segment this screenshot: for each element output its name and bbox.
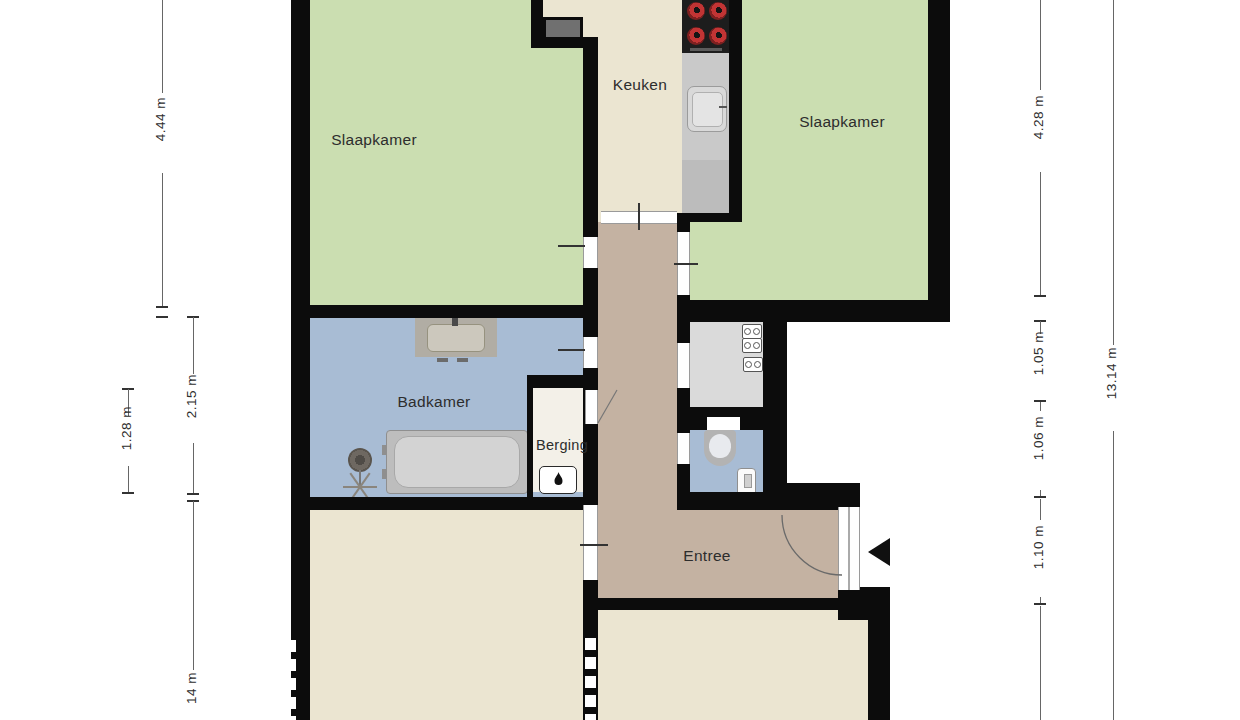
dim-line: [162, 0, 163, 93]
dim-label-1-10: 1.10 m: [1031, 525, 1050, 569]
dim-tick: [1034, 496, 1046, 498]
label-bedroom-left: Slaapkamer: [331, 131, 417, 149]
plan-overlay: [0, 0, 1240, 720]
label-kitchen: Keuken: [613, 76, 667, 94]
dim-line: [193, 443, 194, 494]
dim-tick: [1034, 603, 1046, 605]
dim-line: [1040, 499, 1041, 520]
dim-tick: [156, 306, 168, 308]
floor-plan-canvas: Slaapkamer Keuken Slaapkamer Badkamer Be…: [0, 0, 1240, 720]
dim-line: [1040, 172, 1041, 296]
dim-line: [1040, 402, 1041, 411]
dim-line: [193, 317, 194, 374]
dim-label-1-28: 1.28 m: [119, 406, 138, 450]
label-bedroom-right: Slaapkamer: [799, 113, 885, 131]
dim-tick: [156, 316, 168, 318]
dim-line: [1113, 431, 1114, 720]
dim-line: [162, 173, 163, 307]
dim-label-2-15: 2.15 m: [184, 374, 203, 418]
dim-line: [1040, 606, 1041, 720]
label-bathroom: Badkamer: [397, 393, 470, 411]
dim-line: [128, 466, 129, 493]
dim-tick: [187, 493, 199, 495]
door-swing-arc: [782, 515, 842, 575]
dim-label-4-44: 4.44 m: [153, 97, 172, 141]
storage-door-leaf: [598, 390, 617, 423]
dim-tick: [122, 492, 134, 494]
dim-line: [1040, 0, 1041, 90]
dim-label-1-05: 1.05 m: [1031, 331, 1050, 375]
entrance-arrow-icon: [868, 538, 890, 566]
dim-label-14-partial: 14 m: [184, 672, 203, 704]
dim-label-4-28: 4.28 m: [1031, 95, 1050, 139]
dim-line: [193, 501, 194, 670]
label-entrance: Entree: [683, 547, 730, 565]
dim-label-1-06: 1.06 m: [1031, 416, 1050, 460]
dim-label-13-14: 13.14 m: [1104, 347, 1123, 399]
label-storage: Berging: [536, 437, 588, 453]
dim-line: [1113, 0, 1114, 345]
dim-tick: [1034, 295, 1046, 297]
